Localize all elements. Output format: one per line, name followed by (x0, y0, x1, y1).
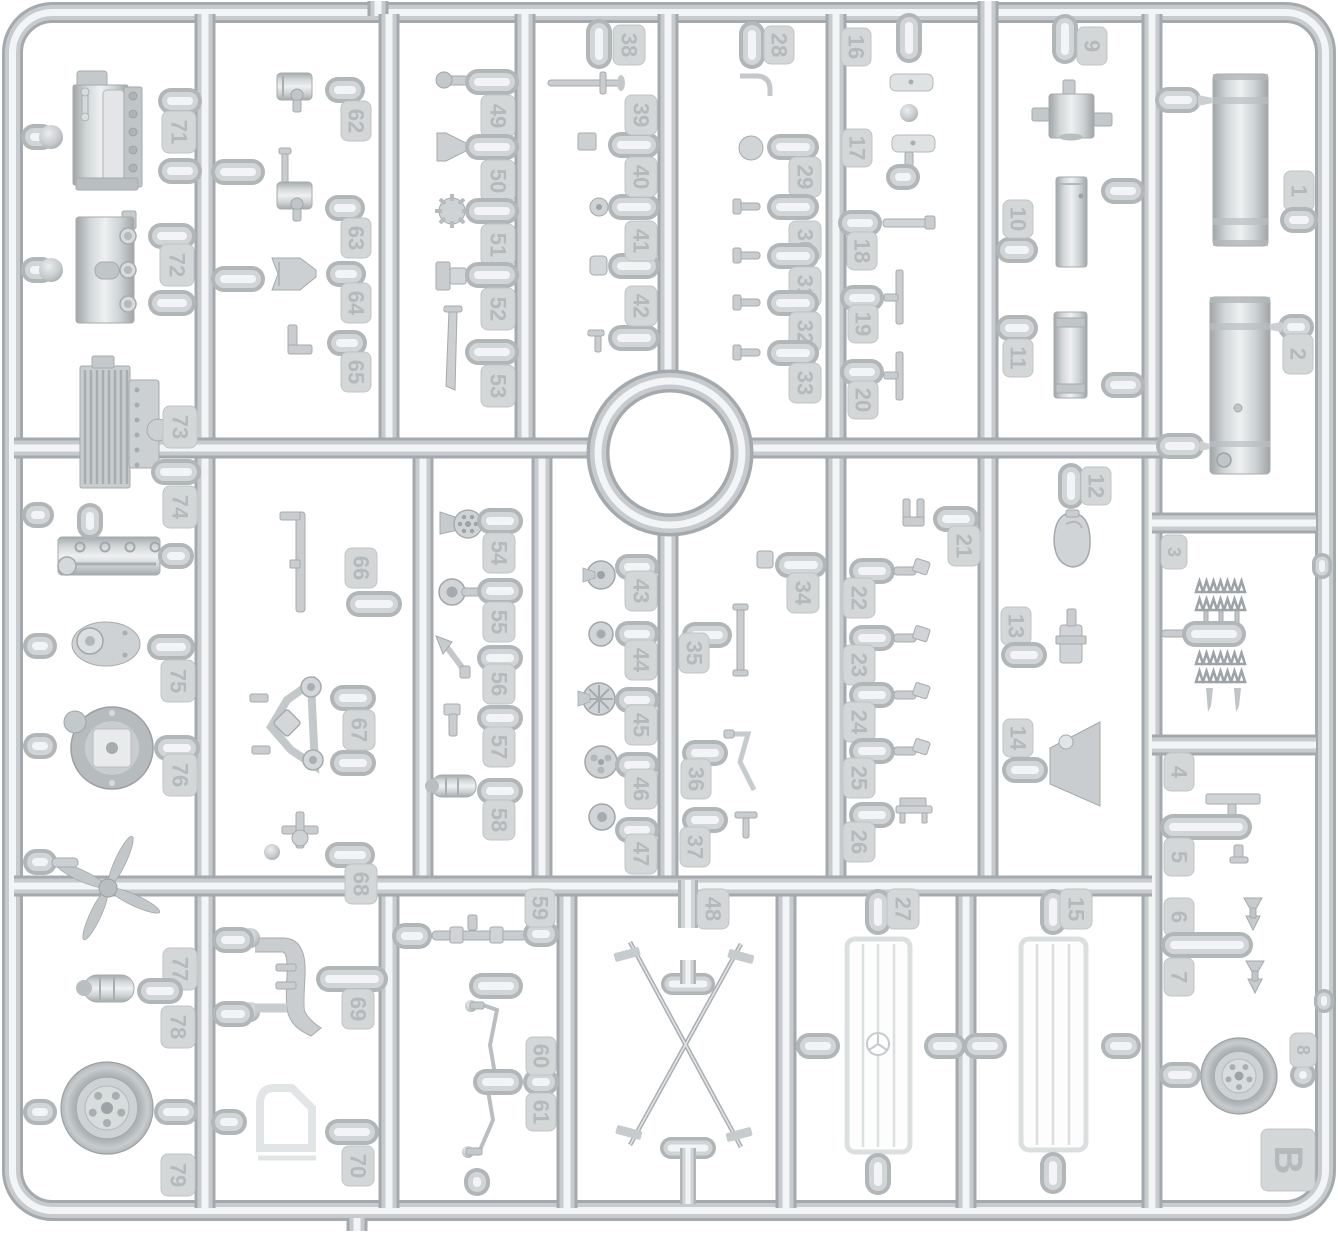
svg-text:23: 23 (847, 653, 872, 677)
svg-text:15: 15 (1064, 897, 1089, 921)
svg-text:5: 5 (1167, 851, 1192, 863)
svg-text:59: 59 (528, 896, 553, 920)
svg-text:10: 10 (1006, 207, 1031, 231)
svg-text:71: 71 (167, 120, 192, 144)
svg-text:69: 69 (346, 997, 371, 1021)
svg-text:1: 1 (1287, 185, 1312, 197)
svg-text:70: 70 (346, 1154, 371, 1178)
svg-text:7: 7 (1167, 971, 1192, 983)
svg-text:42: 42 (629, 294, 654, 318)
svg-text:53: 53 (486, 374, 511, 398)
svg-text:29: 29 (793, 165, 818, 189)
svg-text:44: 44 (629, 648, 654, 673)
svg-text:39: 39 (629, 103, 654, 127)
svg-text:73: 73 (168, 415, 193, 439)
svg-text:16: 16 (844, 35, 869, 59)
svg-text:40: 40 (629, 165, 654, 189)
svg-text:58: 58 (487, 808, 512, 832)
svg-text:33: 33 (793, 371, 818, 395)
svg-text:62: 62 (344, 109, 369, 133)
svg-text:67: 67 (347, 718, 372, 742)
svg-text:17: 17 (845, 136, 870, 160)
svg-text:78: 78 (166, 1015, 191, 1039)
svg-text:22: 22 (847, 586, 872, 610)
svg-text:6: 6 (1167, 911, 1192, 923)
svg-text:4: 4 (1167, 766, 1192, 779)
svg-text:14: 14 (1006, 726, 1031, 751)
svg-text:13: 13 (1004, 614, 1029, 638)
svg-text:52: 52 (486, 297, 511, 321)
svg-text:41: 41 (629, 229, 654, 253)
svg-text:25: 25 (847, 766, 872, 790)
svg-text:8: 8 (1293, 1045, 1313, 1055)
svg-text:65: 65 (344, 360, 369, 384)
svg-text:60: 60 (529, 1044, 554, 1068)
svg-text:66: 66 (349, 556, 374, 580)
svg-text:57: 57 (487, 735, 512, 759)
svg-text:3: 3 (1164, 547, 1184, 557)
svg-text:2: 2 (1286, 348, 1311, 360)
svg-text:11: 11 (1006, 346, 1031, 369)
svg-text:43: 43 (629, 579, 654, 603)
svg-text:76: 76 (168, 763, 193, 787)
svg-text:27: 27 (891, 897, 916, 921)
svg-text:61: 61 (529, 1100, 554, 1124)
svg-text:9: 9 (1080, 40, 1105, 52)
svg-text:20: 20 (851, 388, 876, 412)
svg-text:68: 68 (349, 872, 374, 896)
svg-text:55: 55 (487, 610, 512, 634)
svg-text:38: 38 (617, 33, 642, 57)
svg-text:50: 50 (486, 169, 511, 193)
svg-text:72: 72 (165, 253, 190, 277)
svg-text:64: 64 (344, 291, 369, 316)
svg-text:51: 51 (486, 233, 511, 257)
svg-text:63: 63 (344, 226, 369, 250)
svg-text:28: 28 (767, 33, 792, 57)
svg-text:47: 47 (629, 842, 654, 866)
svg-text:49: 49 (486, 104, 511, 128)
svg-text:26: 26 (847, 830, 872, 854)
svg-text:19: 19 (851, 312, 876, 336)
svg-text:34: 34 (791, 581, 816, 606)
svg-text:B: B (1266, 1146, 1310, 1175)
svg-text:35: 35 (682, 641, 707, 665)
svg-text:21: 21 (952, 534, 977, 558)
svg-text:74: 74 (168, 495, 193, 520)
svg-text:56: 56 (487, 672, 512, 696)
svg-text:79: 79 (166, 1163, 191, 1187)
svg-text:37: 37 (683, 835, 708, 859)
svg-text:77: 77 (168, 957, 193, 981)
svg-text:46: 46 (629, 777, 654, 801)
svg-text:54: 54 (487, 541, 512, 566)
svg-text:48: 48 (701, 897, 726, 921)
svg-text:18: 18 (850, 239, 875, 263)
svg-text:36: 36 (684, 767, 709, 791)
svg-text:45: 45 (629, 713, 654, 737)
svg-text:24: 24 (847, 710, 872, 735)
svg-text:75: 75 (166, 669, 191, 693)
svg-text:12: 12 (1084, 474, 1109, 498)
